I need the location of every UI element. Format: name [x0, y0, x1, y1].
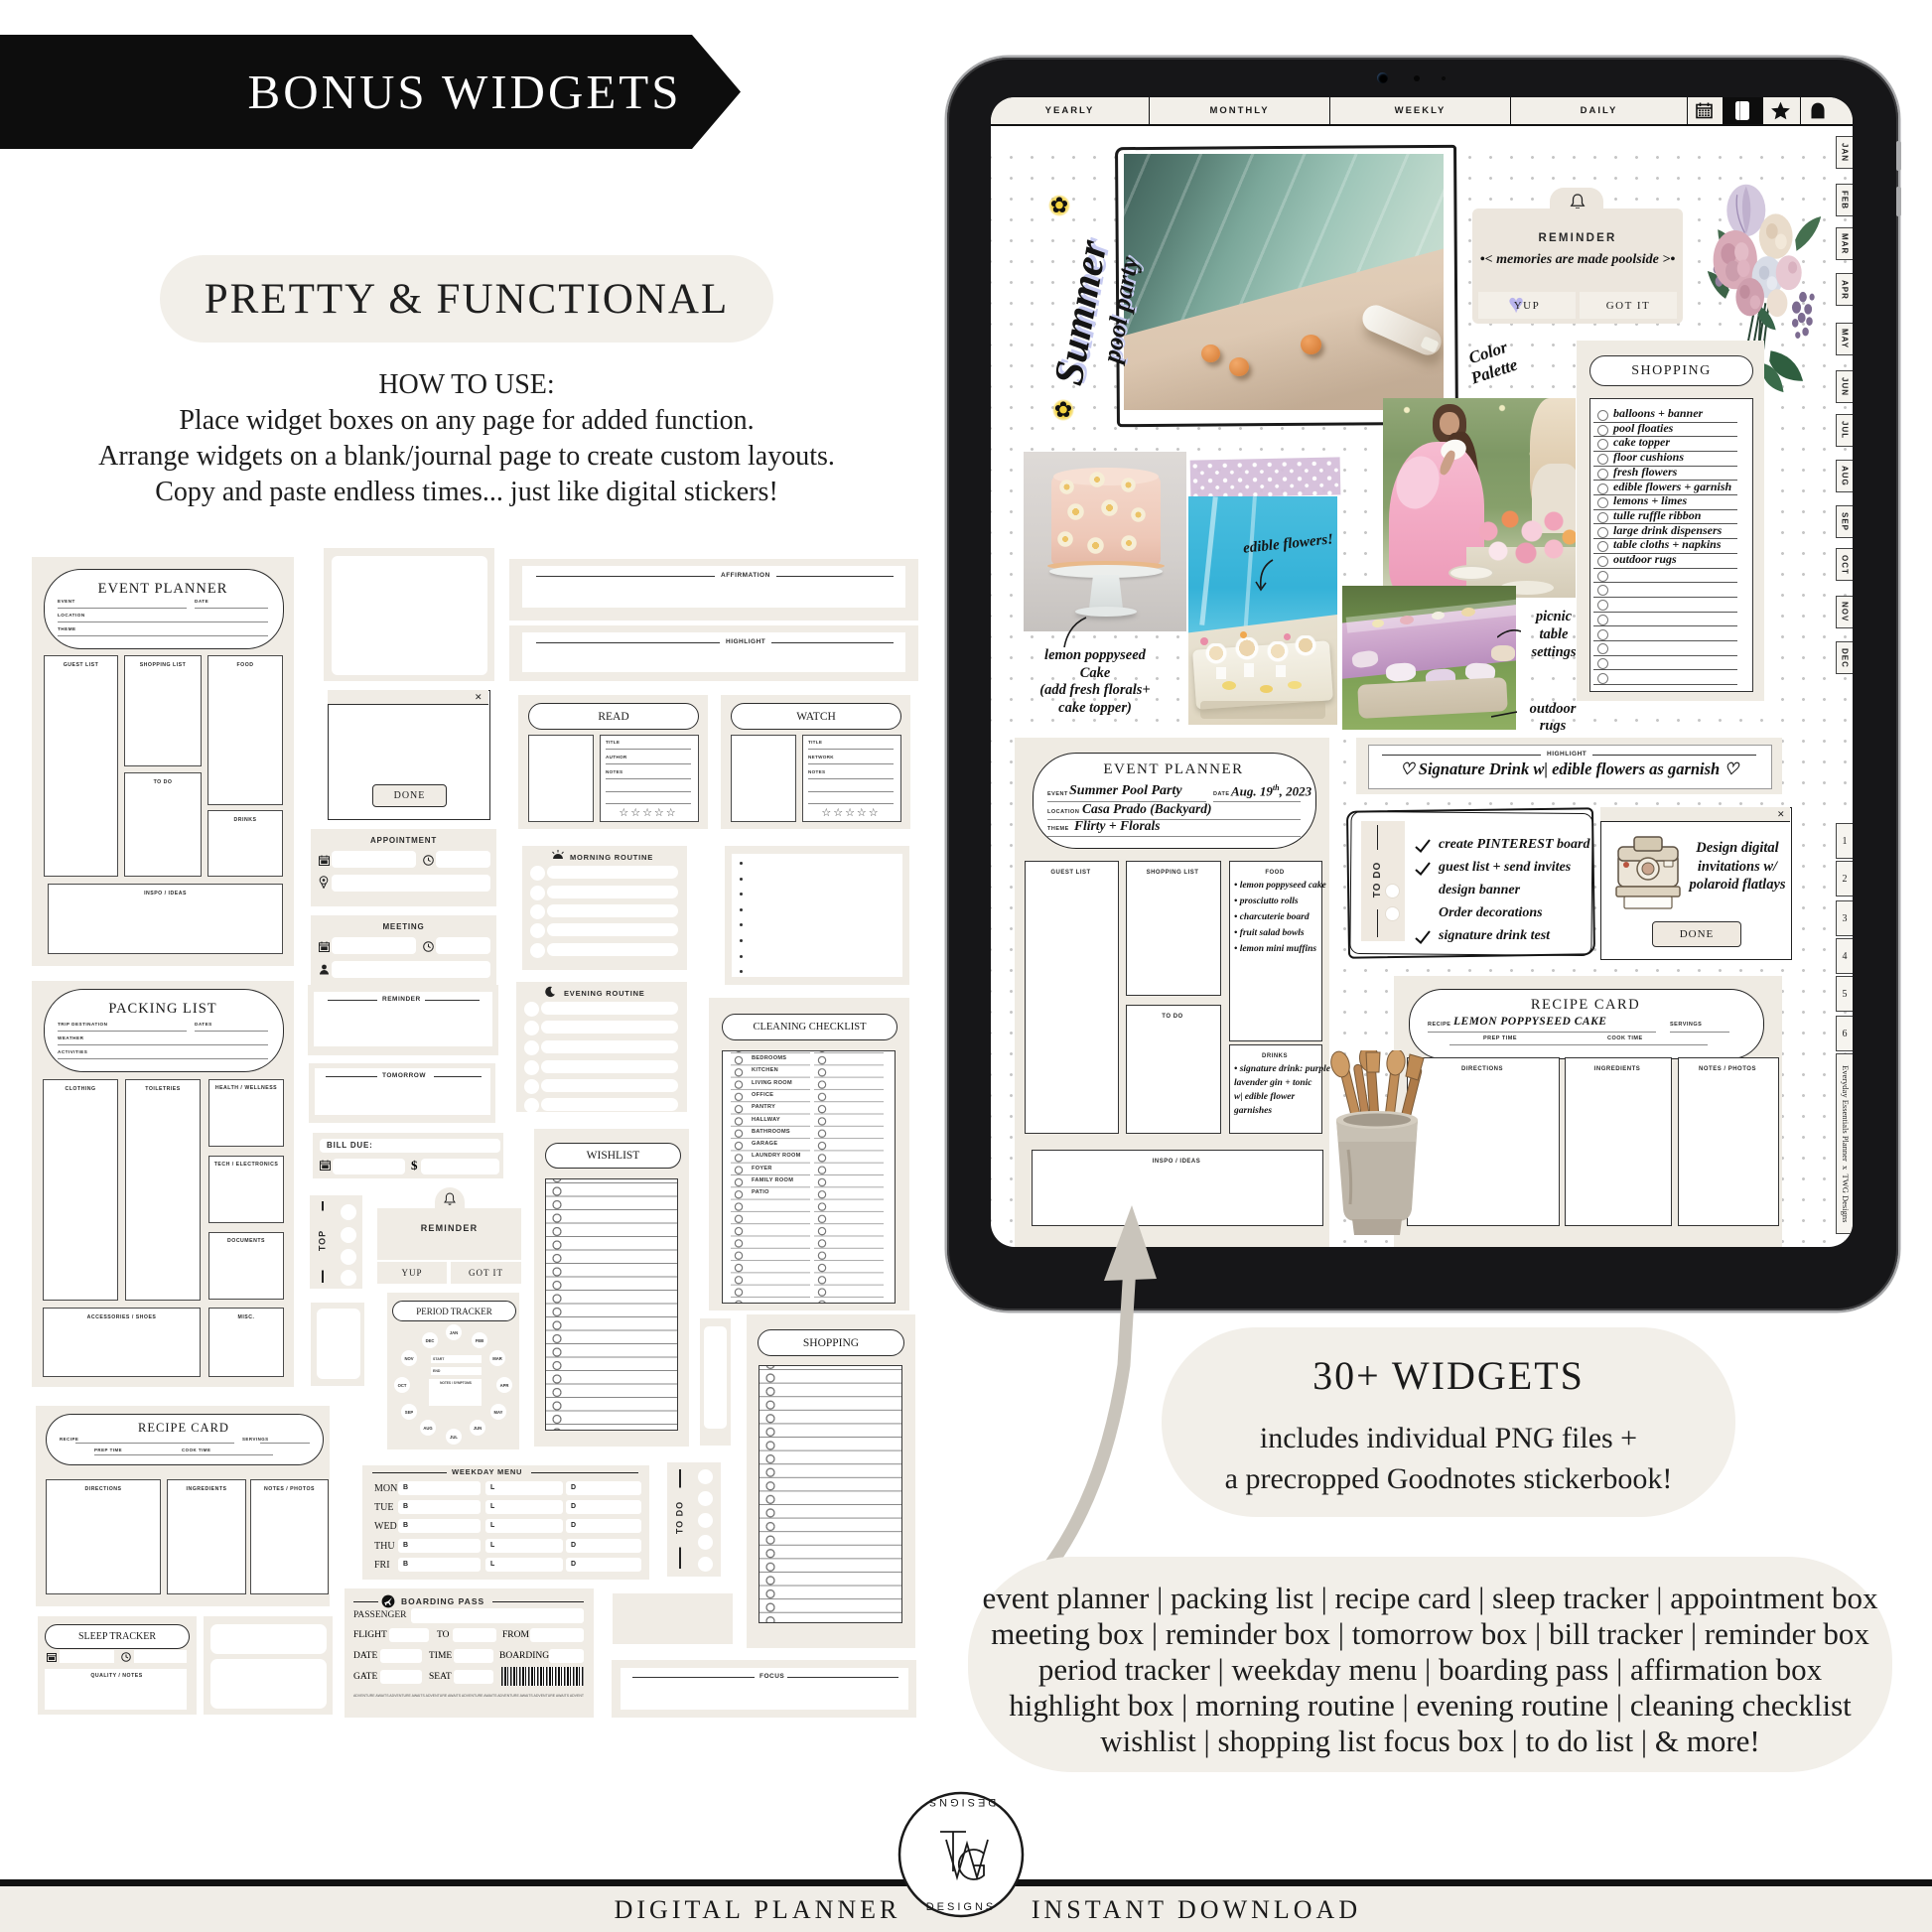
svg-text:DESIGNS: DESIGNS — [926, 1796, 997, 1808]
svg-text:DESIGNS: DESIGNS — [926, 1901, 997, 1913]
